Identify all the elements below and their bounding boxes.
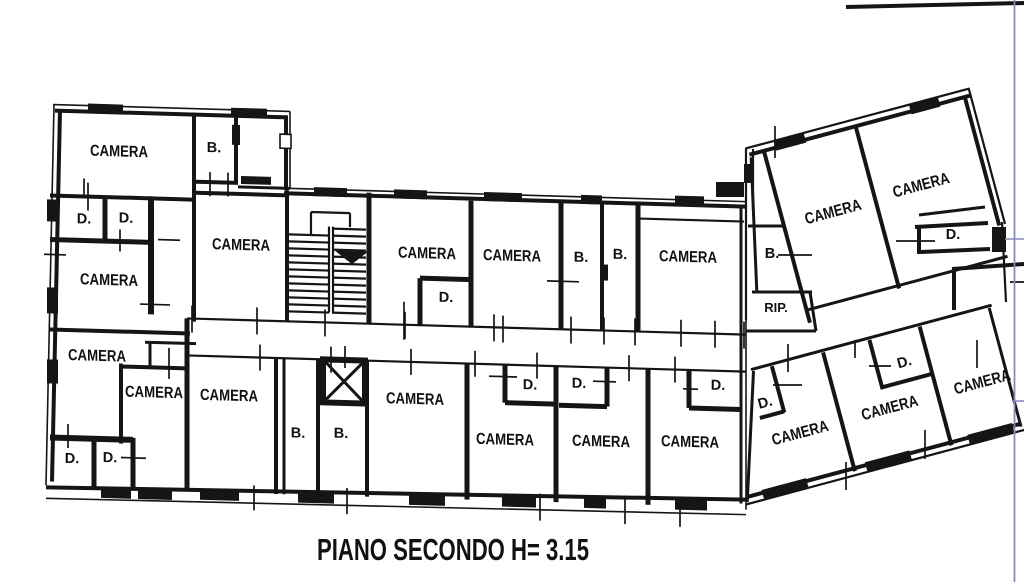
svg-text:CAMERA: CAMERA (80, 271, 138, 290)
svg-text:B.: B. (765, 246, 780, 262)
svg-text:D.: D. (119, 210, 133, 226)
svg-text:D.: D. (103, 450, 117, 466)
svg-text:B.: B. (613, 247, 627, 263)
svg-text:D.: D. (572, 376, 586, 392)
svg-text:B.: B. (207, 140, 221, 156)
svg-text:D.: D. (523, 377, 537, 393)
svg-text:CAMERA: CAMERA (572, 433, 630, 452)
svg-text:D.: D. (439, 290, 453, 306)
svg-text:CAMERA: CAMERA (476, 431, 534, 450)
svg-text:B.: B. (574, 250, 588, 266)
svg-text:CAMERA: CAMERA (68, 347, 126, 366)
svg-text:PIANO SECONDO H= 3.15: PIANO SECONDO H= 3.15 (317, 532, 589, 567)
svg-text:RIP.: RIP. (764, 300, 788, 315)
svg-text:CAMERA: CAMERA (386, 390, 444, 409)
svg-text:CAMERA: CAMERA (90, 143, 148, 162)
svg-text:CAMERA: CAMERA (661, 433, 719, 452)
svg-text:B.: B. (334, 426, 348, 442)
svg-text:CAMERA: CAMERA (125, 384, 183, 403)
svg-text:D.: D. (711, 378, 725, 394)
svg-text:D.: D. (946, 227, 961, 243)
svg-text:CAMERA: CAMERA (483, 247, 541, 266)
svg-text:CAMERA: CAMERA (398, 245, 456, 264)
svg-text:D.: D. (77, 211, 91, 227)
svg-text:D.: D. (65, 451, 79, 467)
svg-text:CAMERA: CAMERA (212, 236, 270, 255)
svg-text:B.: B. (291, 425, 305, 441)
svg-text:CAMERA: CAMERA (659, 248, 717, 267)
svg-text:CAMERA: CAMERA (200, 387, 258, 406)
